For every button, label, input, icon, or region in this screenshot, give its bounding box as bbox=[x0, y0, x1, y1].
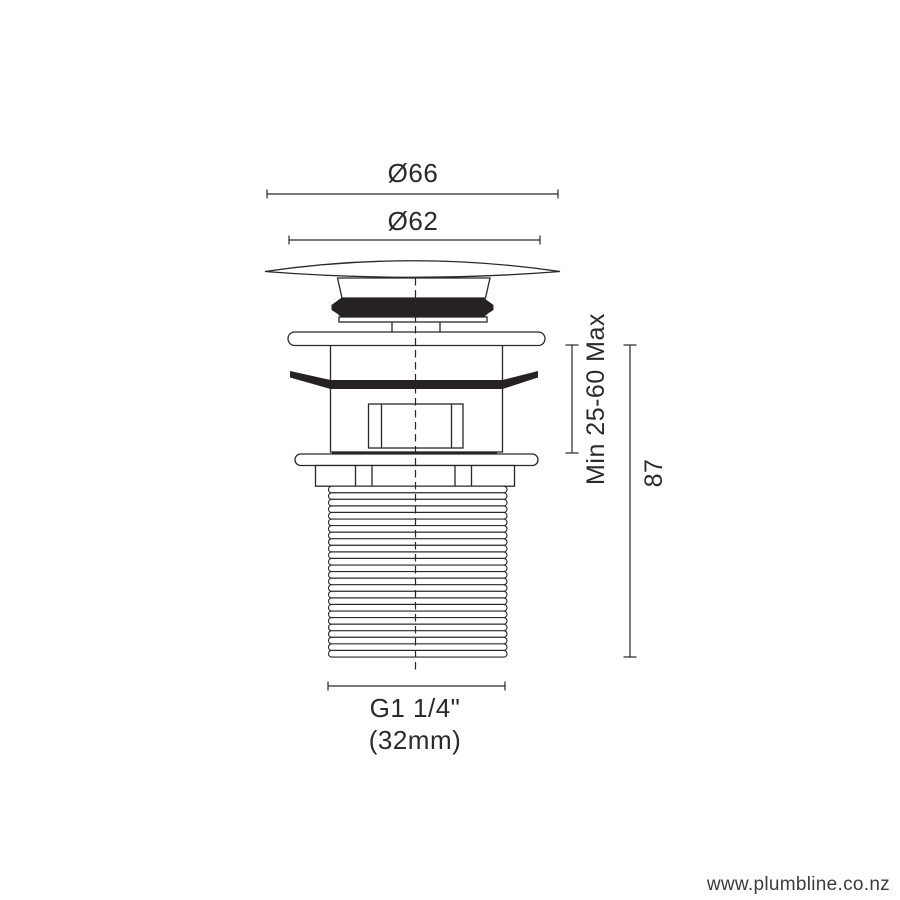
thread-ridge bbox=[329, 552, 508, 559]
dim-label-thread-size: G1 1/4" bbox=[370, 693, 461, 723]
thread-ridge bbox=[329, 611, 508, 618]
thread-ridge bbox=[329, 604, 508, 611]
thread-ridges bbox=[329, 486, 508, 657]
dim-label-dia-inner: Ø62 bbox=[388, 206, 439, 236]
cap-stem bbox=[338, 278, 491, 298]
thread-ridge bbox=[329, 631, 508, 638]
thread-ridge bbox=[329, 618, 508, 625]
plug-seal bbox=[332, 298, 494, 317]
seal-plate bbox=[339, 317, 487, 322]
thread-ridge bbox=[329, 545, 508, 552]
thread-ridge bbox=[329, 598, 508, 605]
thread-ridge bbox=[329, 499, 508, 506]
bottom-flange bbox=[295, 454, 538, 466]
thread-ridge bbox=[329, 512, 508, 519]
top-flange bbox=[288, 332, 545, 346]
thread-ridge bbox=[329, 624, 508, 631]
technical-drawing: Ø66 Ø62 Min 25-60 Max 87 G1 1/4" (32mm) … bbox=[0, 0, 900, 900]
drawing-canvas: Ø66 Ø62 Min 25-60 Max 87 G1 1/4" (32mm) … bbox=[0, 0, 900, 900]
thread-ridge bbox=[329, 526, 508, 533]
thread-ridge bbox=[329, 506, 508, 513]
thread-ridge bbox=[329, 650, 508, 657]
thread-ridge bbox=[329, 539, 508, 546]
dim-label-overall-height: 87 bbox=[640, 459, 668, 488]
dim-label-thread-size-mm: (32mm) bbox=[369, 725, 462, 755]
watermark-url: www.plumbline.co.nz bbox=[706, 874, 890, 895]
thread-ridge bbox=[329, 519, 508, 526]
dim-label-clamp-range: Min 25-60 Max bbox=[582, 313, 610, 485]
thread-ridge bbox=[329, 637, 508, 644]
thread-ridge bbox=[329, 493, 508, 500]
thread-ridge bbox=[329, 591, 508, 598]
thread-ridge bbox=[329, 532, 508, 539]
thread-ridge bbox=[329, 572, 508, 579]
dim-label-dia-outer: Ø66 bbox=[388, 158, 439, 188]
thread-ridge bbox=[329, 558, 508, 565]
thread-ridge bbox=[329, 644, 508, 651]
thread-ridge bbox=[329, 578, 508, 585]
waste-fitting-outline bbox=[265, 261, 560, 657]
thread-ridge bbox=[329, 565, 508, 572]
cap-dome bbox=[265, 261, 560, 278]
thread-ridge bbox=[329, 486, 508, 493]
thread-ridge bbox=[329, 585, 508, 592]
